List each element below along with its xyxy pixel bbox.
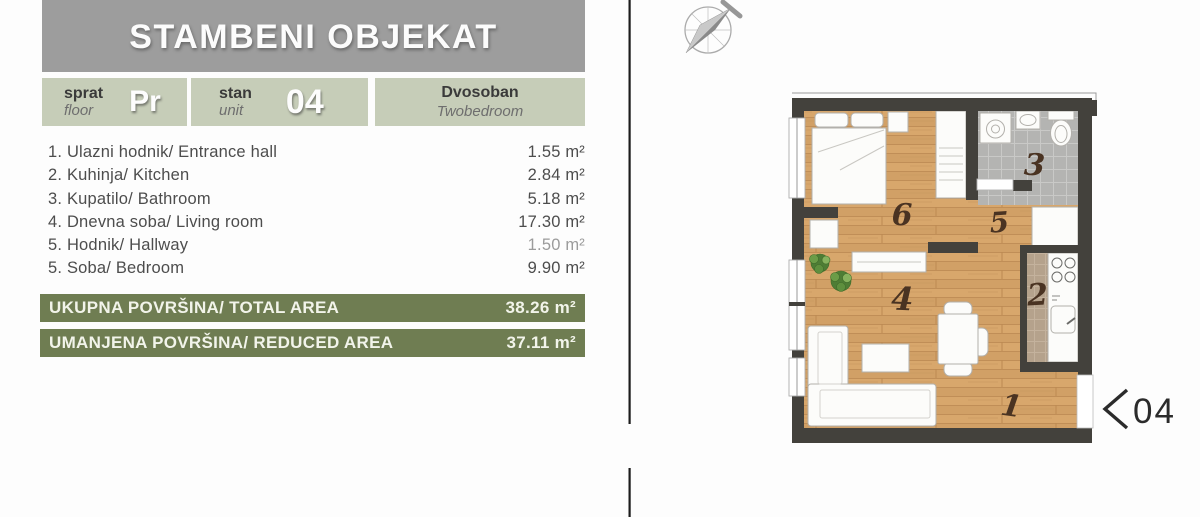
nightstand bbox=[888, 112, 908, 132]
entrance-marker: 04 bbox=[1105, 390, 1176, 431]
room-row-bedroom: 5. Soba/ Bedroom 9.90 m² bbox=[48, 257, 585, 280]
room-name: 2. Kuhinja/ Kitchen bbox=[48, 164, 189, 187]
entrance-door-opening bbox=[1077, 375, 1093, 428]
apartment-type-box: Dvosoban Twobedroom bbox=[375, 78, 585, 126]
room-row-entrance-hall: 1. Ulazni hodnik/ Entrance hall 1.55 m² bbox=[48, 141, 585, 164]
total-area-label: UKUPNA POVRŠINA/ TOTAL AREA bbox=[49, 298, 339, 318]
entrance-unit-number: 04 bbox=[1133, 392, 1176, 431]
coffee-table bbox=[862, 344, 909, 372]
room-name: 1. Ulazni hodnik/ Entrance hall bbox=[48, 141, 277, 164]
bathroom-sink bbox=[1016, 111, 1040, 129]
unit-label-sr: stan bbox=[219, 85, 252, 103]
room-area: 2.84 m² bbox=[528, 164, 585, 187]
type-label-en: Twobedroom bbox=[437, 103, 523, 120]
total-area-bar: UKUPNA POVRŠINA/ TOTAL AREA 38.26 m² bbox=[40, 294, 585, 322]
room-number-bathroom: 3 bbox=[1023, 147, 1046, 183]
room-number-hallway: 5 bbox=[988, 205, 1010, 239]
room-area: 17.30 m² bbox=[518, 211, 585, 234]
total-area-value: 38.26 m² bbox=[506, 298, 576, 318]
room-area: 1.55 m² bbox=[528, 141, 585, 164]
room-row-hallway: 5. Hodnik/ Hallway 1.50 m² bbox=[48, 234, 585, 257]
room-area: 9.90 m² bbox=[528, 257, 585, 280]
reduced-area-value: 37.11 m² bbox=[506, 333, 576, 353]
page-title: STAMBENI OBJEKAT bbox=[42, 0, 585, 72]
room-name: 5. Soba/ Bedroom bbox=[48, 257, 184, 280]
reduced-area-bar: UMANJENA POVRŠINA/ REDUCED AREA 37.11 m² bbox=[40, 329, 585, 357]
room-number-bedroom: 6 bbox=[892, 198, 913, 233]
room-row-bathroom: 3. Kupatilo/ Bathroom 5.18 m² bbox=[48, 188, 585, 211]
room-name: 3. Kupatilo/ Bathroom bbox=[48, 188, 211, 211]
unit-label-en: unit bbox=[219, 103, 252, 120]
room-name: 4. Dnevna soba/ Living room bbox=[48, 211, 263, 234]
unit-value: 04 bbox=[286, 83, 324, 122]
room-number-kitchen: 2 bbox=[1025, 277, 1049, 313]
entrance-chevron-icon bbox=[1105, 390, 1127, 428]
floor-label-sr: sprat bbox=[64, 85, 103, 103]
north-arrow-icon bbox=[685, 2, 740, 53]
room-area: 5.18 m² bbox=[528, 188, 585, 211]
tv-stand bbox=[852, 252, 926, 272]
room-area-list: 1. Ulazni hodnik/ Entrance hall 1.55 m² … bbox=[48, 141, 585, 281]
room-number-living: 4 bbox=[891, 280, 915, 319]
unit-info-box: stan unit 04 bbox=[191, 78, 368, 126]
floor-value: Pr bbox=[129, 85, 161, 119]
bedroom-wardrobe bbox=[936, 111, 966, 198]
kitchen-counter bbox=[1048, 253, 1078, 362]
floor-info-box: sprat floor Pr bbox=[42, 78, 187, 126]
room-area: 1.50 m² bbox=[528, 234, 585, 257]
floor-label-en: floor bbox=[64, 103, 103, 120]
bathroom-door bbox=[977, 179, 1013, 190]
room-name: 5. Hodnik/ Hallway bbox=[48, 234, 188, 257]
divider-line bbox=[629, 0, 631, 517]
hallway-wardrobe bbox=[1032, 207, 1078, 250]
living-window-1 bbox=[789, 260, 805, 350]
room-row-kitchen: 2. Kuhinja/ Kitchen 2.84 m² bbox=[48, 164, 585, 187]
reduced-area-label: UMANJENA POVRŠINA/ REDUCED AREA bbox=[49, 333, 393, 353]
living-window-2 bbox=[789, 358, 805, 396]
floor-plan-graphic: 1 2 3 4 5 6 04 bbox=[600, 0, 1200, 517]
dresser bbox=[810, 220, 838, 248]
bedroom-window bbox=[789, 118, 805, 198]
room-row-living: 4. Dnevna soba/ Living room 17.30 m² bbox=[48, 211, 585, 234]
type-label-sr: Dvosoban bbox=[441, 84, 518, 102]
washing-machine bbox=[980, 113, 1011, 143]
